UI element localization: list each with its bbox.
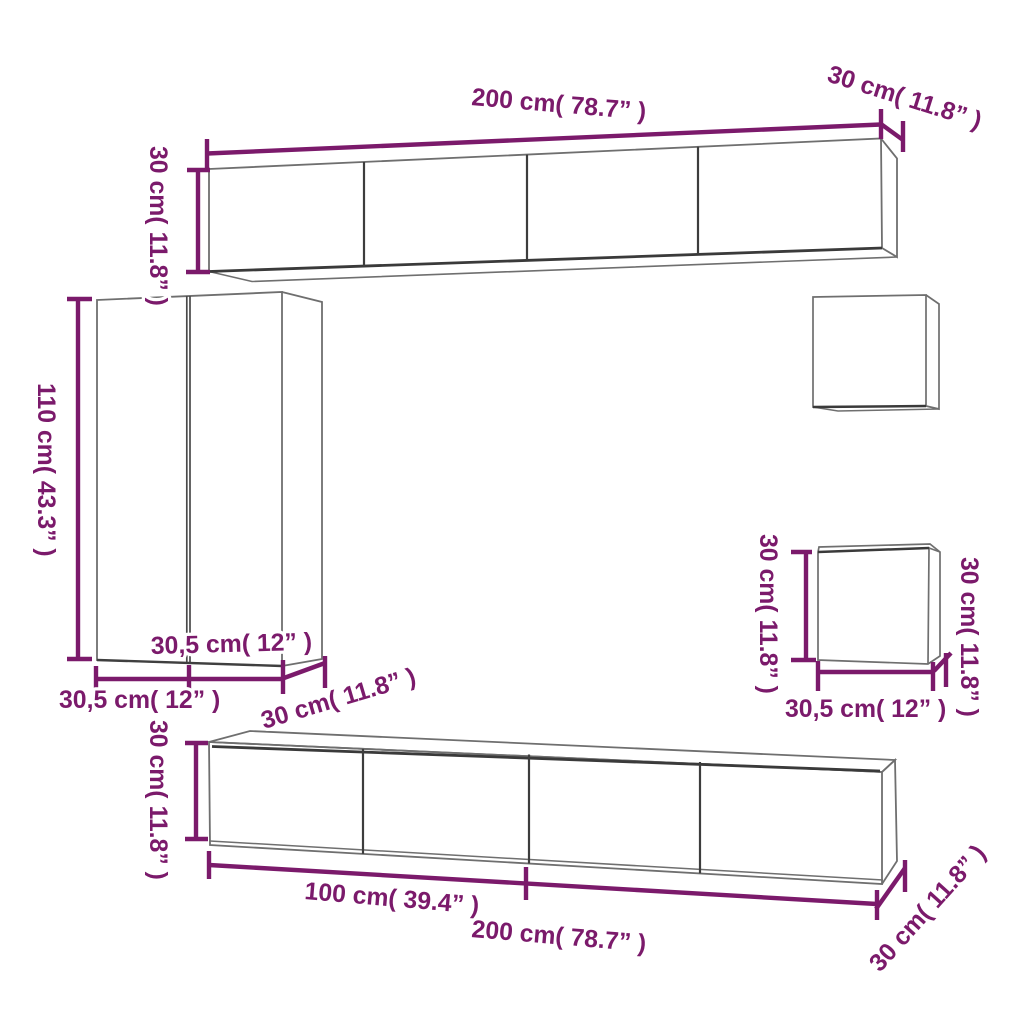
- svg-text:30 cm( 11.8” ): 30 cm( 11.8” ): [144, 146, 171, 306]
- svg-text:30 cm( 11.8” ): 30 cm( 11.8” ): [955, 557, 982, 717]
- svg-text:200 cm( 78.7” ): 200 cm( 78.7” ): [470, 916, 647, 958]
- svg-text:30,5 cm( 12” ): 30,5 cm( 12” ): [785, 696, 946, 723]
- svg-text:100 cm( 39.4” ): 100 cm( 39.4” ): [303, 878, 480, 920]
- svg-text:30 cm( 11.8” ): 30 cm( 11.8” ): [754, 534, 781, 694]
- svg-text:110 cm( 43.3” ): 110 cm( 43.3” ): [32, 383, 59, 557]
- svg-text:30,5 cm( 12” ): 30,5 cm( 12” ): [150, 629, 312, 660]
- svg-text:200 cm( 78.7” ): 200 cm( 78.7” ): [470, 84, 647, 126]
- svg-text:30 cm( 11.8” ): 30 cm( 11.8” ): [144, 720, 171, 880]
- svg-text:30,5 cm( 12” ): 30,5 cm( 12” ): [59, 687, 220, 714]
- svg-text:30 cm( 11.8” ): 30 cm( 11.8” ): [864, 840, 991, 977]
